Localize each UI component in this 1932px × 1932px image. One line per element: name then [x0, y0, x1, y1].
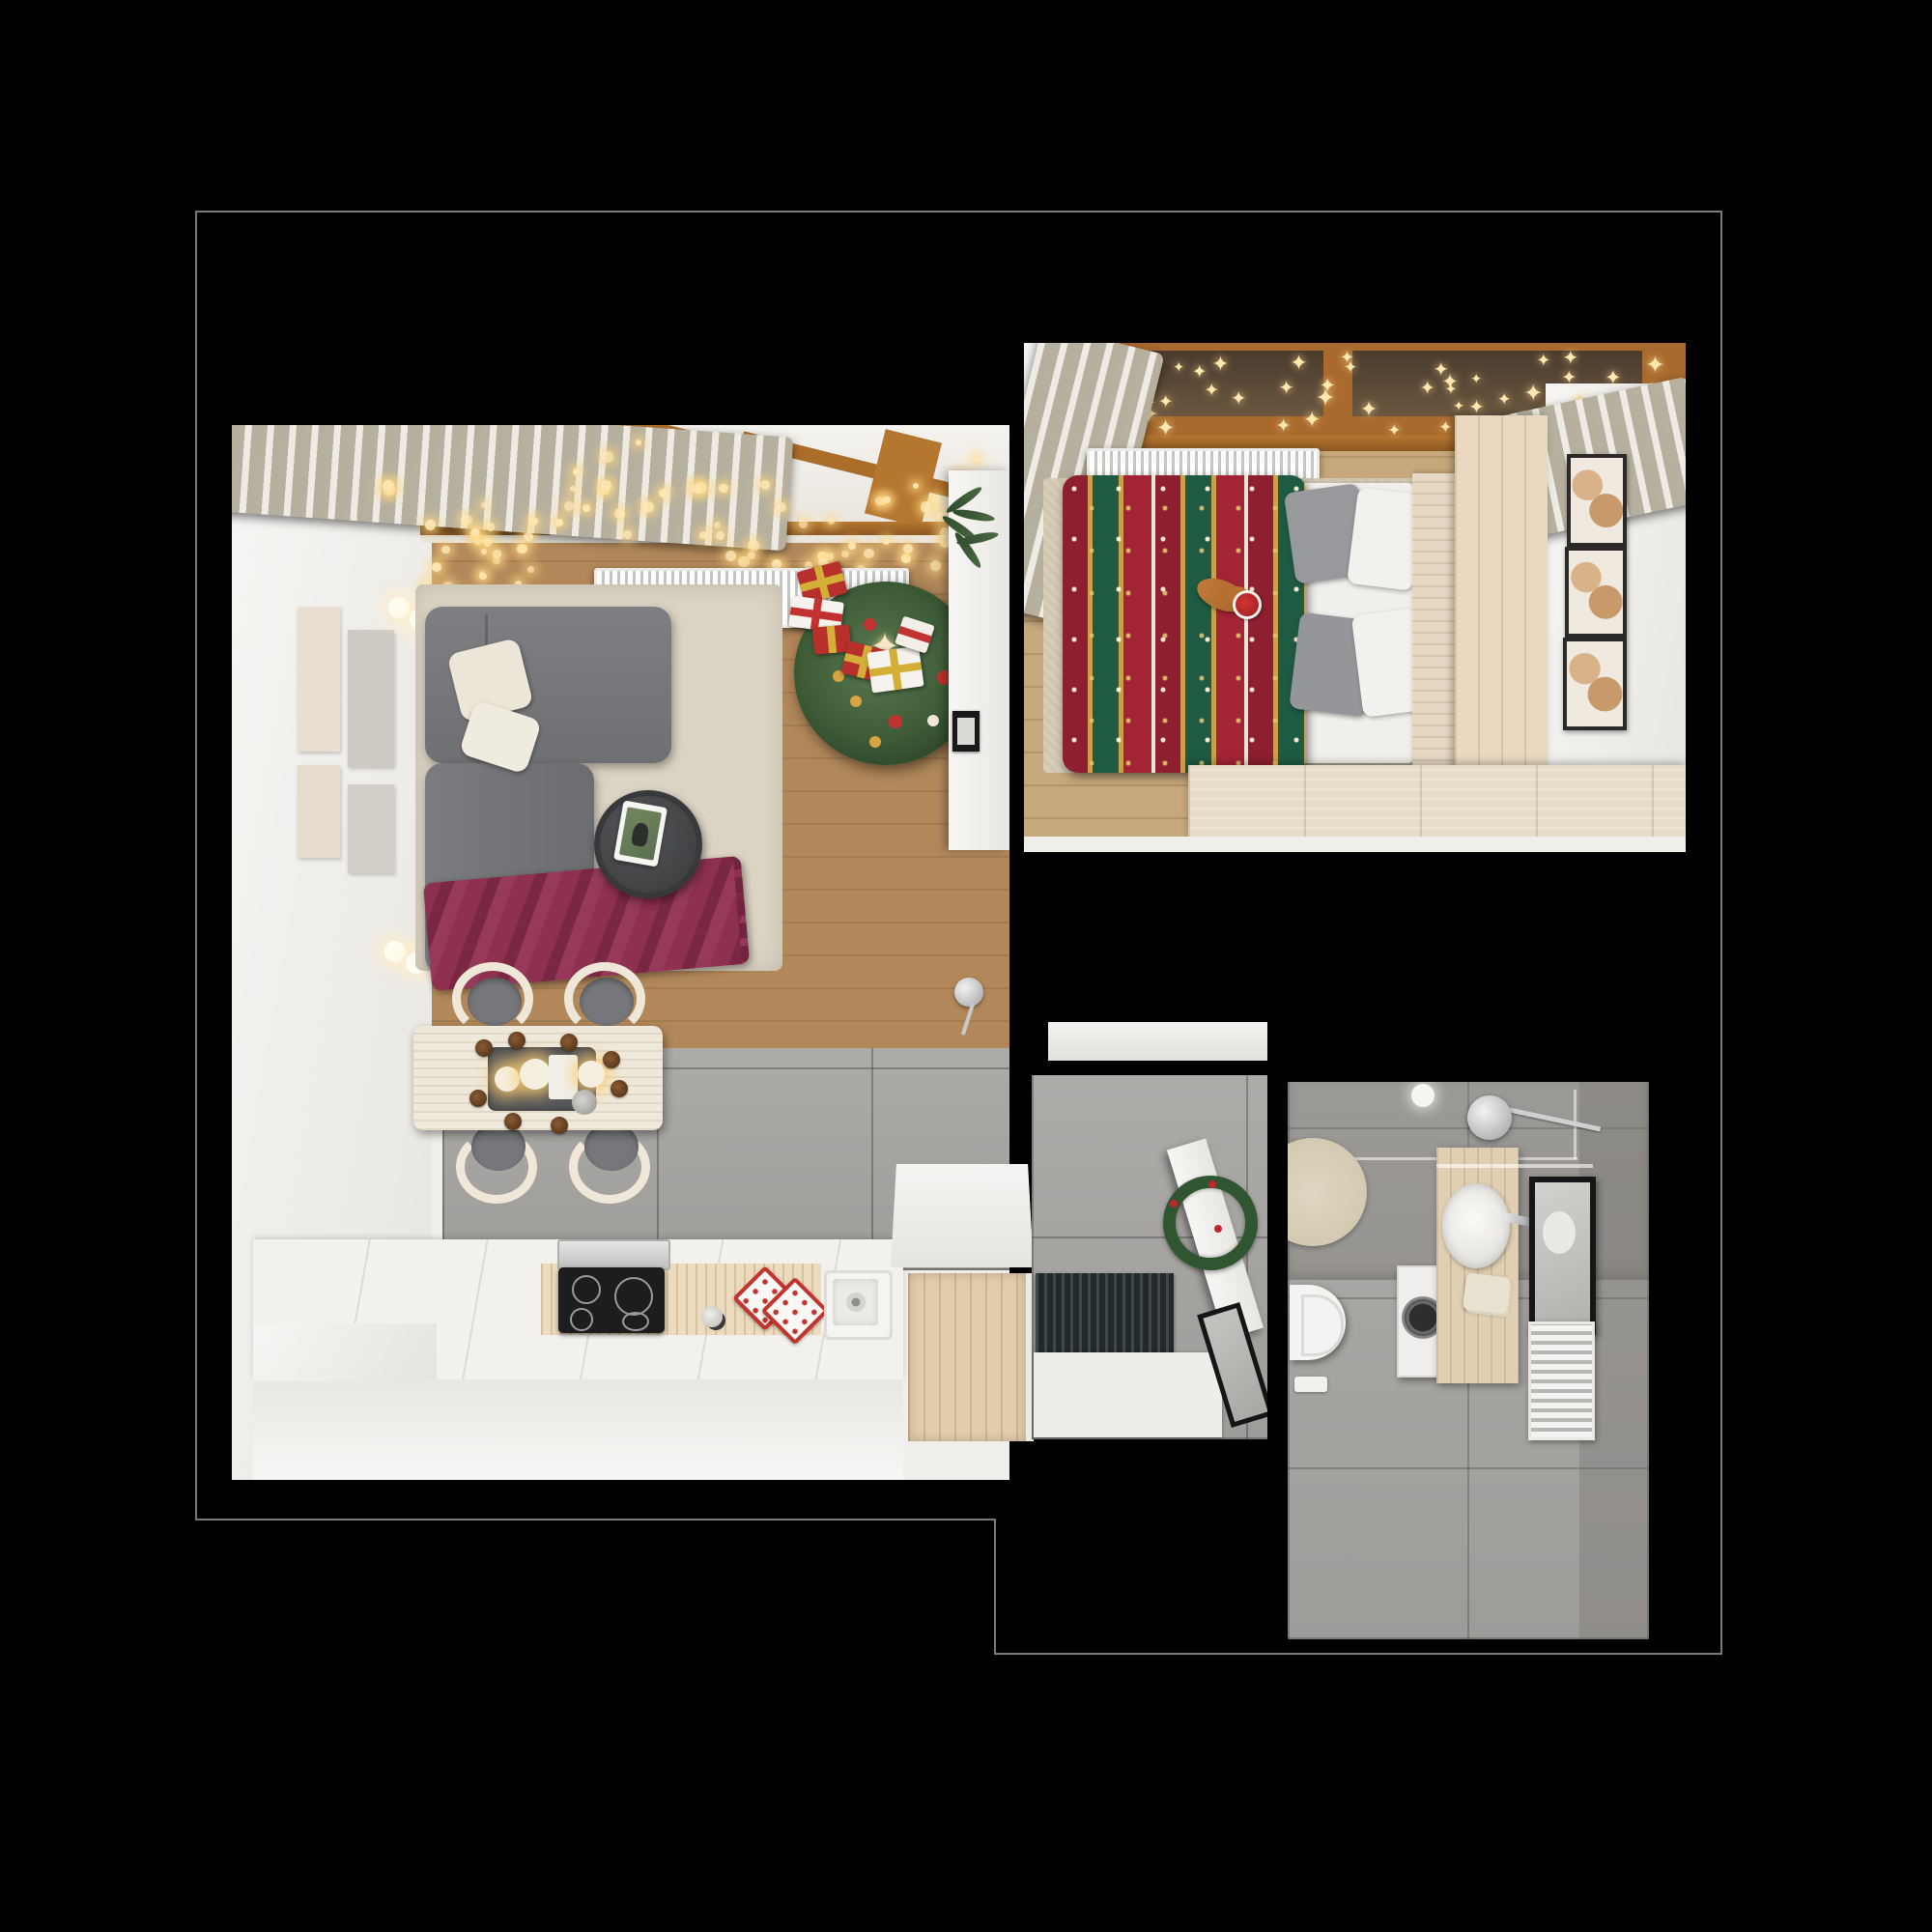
fairy-light-bulb — [691, 484, 701, 495]
fairy-light-bulb — [826, 553, 834, 560]
hallway — [1032, 1075, 1267, 1439]
star-light: ✦ — [1605, 367, 1622, 387]
star-light: ✦ — [1420, 379, 1435, 397]
fairy-light-bulb — [383, 480, 394, 492]
wardrobe — [1455, 415, 1548, 775]
gift-box-white-goldbow — [867, 645, 923, 693]
fairy-light-bulb — [642, 501, 654, 513]
star-light: ✦ — [1276, 416, 1292, 435]
star-light: ✦ — [1278, 379, 1293, 398]
star-light: ✦ — [1303, 410, 1321, 432]
fairy-light-bulb — [432, 562, 441, 572]
tree-ornament — [889, 715, 902, 728]
fairy-light-bulb — [714, 522, 722, 529]
fairy-light-bulb — [748, 540, 759, 552]
star-light: ✦ — [1523, 382, 1543, 405]
entry-closet-wood — [908, 1273, 1026, 1441]
wall-art-panel — [298, 607, 340, 752]
palm-plant — [935, 478, 1009, 570]
fairy-light-bulb — [848, 542, 856, 550]
pinecone — [551, 1117, 568, 1134]
living-room: ✦ — [232, 425, 1009, 1480]
fairy-light-bulb — [828, 518, 835, 525]
fairy-light-bulb — [913, 483, 919, 489]
fairy-light-bulb — [636, 440, 642, 446]
tree-ornament — [927, 715, 939, 726]
pinecone — [469, 1090, 487, 1107]
glass-shelf — [1436, 1164, 1593, 1168]
chrome-floor-lamp — [954, 978, 983, 1007]
bedroom-art-frame — [1563, 638, 1627, 730]
bedroom-bottom-wall — [1024, 837, 1686, 852]
burner — [622, 1312, 649, 1331]
candle-box — [549, 1055, 578, 1099]
fairy-light-bulb — [481, 501, 488, 508]
star-light: ✦ — [1645, 354, 1665, 378]
extractor-hood — [557, 1239, 670, 1270]
mug — [701, 1306, 723, 1327]
fairy-light-bulb — [901, 554, 911, 563]
fairy-light-bulb — [483, 538, 492, 547]
fairy-light-bulb — [441, 546, 450, 554]
burner — [614, 1277, 653, 1316]
fairy-light-bulb — [527, 566, 534, 573]
star-light: ✦ — [1158, 394, 1174, 412]
wreath-berry — [1170, 1200, 1178, 1207]
wreath-berry — [1208, 1180, 1216, 1188]
fairy-light-bulb — [699, 531, 707, 539]
star-light: ✦ — [1453, 400, 1464, 413]
burner — [570, 1308, 593, 1331]
fairy-light-bulb — [564, 501, 574, 511]
star-light: ✦ — [1173, 361, 1184, 376]
fairy-light-bulb — [573, 469, 580, 475]
star-light: ✦ — [1231, 389, 1246, 409]
towels-stack — [1463, 1272, 1511, 1314]
fairy-light-bulb — [725, 551, 736, 561]
bowl — [572, 1090, 597, 1115]
star-light: ✦ — [1360, 399, 1378, 420]
kitchen-sink — [824, 1270, 893, 1340]
candle-lit — [520, 1059, 551, 1090]
bedroom-art-frame — [1565, 547, 1627, 638]
star-light: ✦ — [1438, 420, 1452, 437]
fairy-light-bulb — [602, 451, 613, 463]
wreath-berry — [1214, 1225, 1222, 1233]
fairy-light-bulb — [777, 502, 786, 512]
bathroom — [1288, 1082, 1649, 1639]
candle-lit — [495, 1066, 520, 1092]
fairy-light-bulb — [555, 519, 563, 526]
fairy-light-bulb — [748, 552, 755, 559]
tablet-screen-figure — [631, 822, 650, 847]
fairy-light-bulb — [529, 517, 538, 526]
dining-chair-seat — [580, 978, 634, 1026]
star-light: ✦ — [1497, 392, 1511, 409]
bedroom-art-frame — [1567, 454, 1627, 547]
gift-box-red-small — [812, 624, 851, 654]
fairy-light-bulb — [524, 532, 533, 542]
oval-basin — [1442, 1183, 1510, 1268]
star-light: ✦ — [1192, 364, 1207, 383]
counter-corner-bevel — [253, 1323, 437, 1381]
bed-christmas-blanket — [1063, 475, 1306, 773]
christmas-wreath — [1163, 1176, 1258, 1270]
sink-drain — [846, 1293, 866, 1312]
fairy-light-bulb — [921, 501, 931, 512]
fairy-light-bulb — [875, 497, 884, 505]
pinecone — [475, 1039, 493, 1057]
towel-radiator — [1528, 1321, 1595, 1440]
fairy-light-bulb — [883, 497, 890, 503]
fairy-light-bulb — [461, 515, 471, 526]
fairy-light-bulb — [716, 531, 724, 540]
fairy-light-bulb — [481, 549, 487, 554]
kitchen-counter-front — [253, 1379, 903, 1480]
tree-ornament — [869, 736, 881, 748]
doormat — [1036, 1273, 1174, 1354]
bathroom-mirror — [1529, 1177, 1596, 1335]
bedroom: ✦✦✦✦✦✦✦✦✦✦✦✦✦✦✦✦✦✦✦✦✦✦✦✦✦✦✦✦✦✦✦✦✦✦✦✦✦✦✦✦… — [1024, 343, 1686, 852]
fairy-light-bulb — [841, 551, 848, 557]
floor-plan-canvas: ✦ — [0, 0, 1932, 1932]
fairy-light-bulb — [760, 480, 770, 490]
star-light: ✦ — [1340, 350, 1354, 367]
fairy-light-bulb — [487, 523, 496, 531]
star-light: ✦ — [1211, 355, 1229, 376]
star-light: ✦ — [1468, 398, 1484, 417]
dining-chair-seat — [468, 978, 522, 1026]
fairy-light-bulb — [493, 550, 501, 558]
star-light: ✦ — [1563, 349, 1579, 368]
fairy-light-bulb — [623, 530, 632, 539]
star-light: ✦ — [1441, 372, 1459, 392]
fairy-light-bulb — [719, 484, 727, 493]
fairy-light-bulb — [570, 486, 576, 492]
fairy-light-bulb — [582, 504, 590, 512]
bedroom-dresser — [1188, 765, 1686, 838]
star-light: ✦ — [1319, 376, 1336, 396]
fairy-light-bulb — [601, 480, 611, 491]
hall-top-cabinet — [1048, 1022, 1267, 1061]
ceiling-light — [1411, 1084, 1435, 1107]
burner — [572, 1275, 601, 1304]
bed-headboard — [1412, 473, 1455, 773]
pinecone — [504, 1113, 522, 1130]
refrigerator-top — [891, 1164, 1034, 1267]
shower-head — [1467, 1095, 1512, 1140]
fairy-light-bulb — [903, 544, 913, 554]
star-light: ✦ — [1204, 383, 1219, 401]
induction-cooktop — [558, 1267, 665, 1333]
mirror-reflection — [1543, 1211, 1576, 1254]
pinecone — [508, 1032, 526, 1049]
wall-art-panel — [298, 765, 340, 858]
floor-scale — [1294, 1377, 1327, 1392]
fairy-light-bulb — [799, 520, 808, 528]
fairy-light-bulb — [864, 549, 874, 559]
pinecone — [611, 1080, 628, 1097]
pinecone — [603, 1051, 620, 1068]
fairy-light-bulb — [474, 538, 481, 545]
wall-sconce — [388, 597, 410, 618]
fairy-light-bulb — [614, 508, 625, 519]
wall-art-panel — [348, 784, 394, 873]
wall-sconce — [384, 941, 406, 962]
fairy-light-bulb — [883, 538, 890, 545]
entry-white-mat — [1034, 1352, 1222, 1437]
star-light: ✦ — [1536, 353, 1550, 370]
fairy-light-bulb — [659, 489, 668, 497]
fairy-light-bulb — [471, 528, 479, 536]
fairy-light-bulb — [517, 544, 527, 554]
star-light: ✦ — [1387, 423, 1401, 440]
tree-ornament — [850, 696, 862, 707]
tablet-screen — [619, 807, 662, 860]
fairy-light-bulb — [425, 520, 436, 530]
star-light: ✦ — [1470, 373, 1482, 386]
pinecone — [560, 1034, 578, 1051]
star-light: ✦ — [1290, 353, 1308, 374]
santa-hat — [1233, 590, 1262, 619]
wall-art-panel — [348, 630, 394, 767]
framed-photo-on-sideboard — [952, 711, 980, 752]
fairy-light-bulb — [973, 456, 980, 463]
star-light: ✦ — [1561, 369, 1577, 387]
candle-lit — [578, 1061, 605, 1088]
fairy-light-bulb — [479, 573, 487, 581]
